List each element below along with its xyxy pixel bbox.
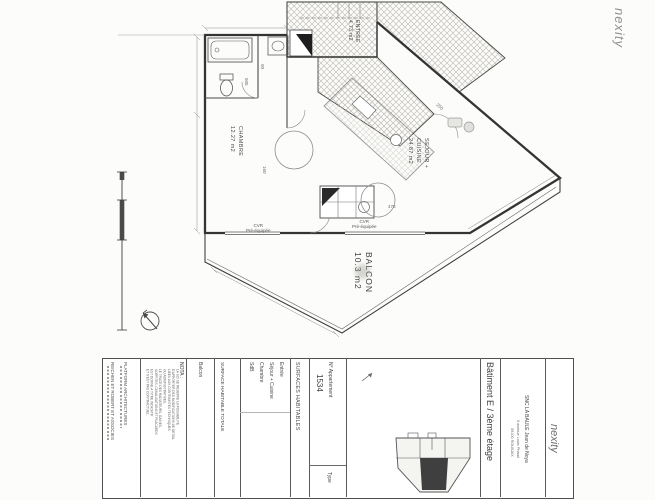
cvr-label-right: CVR Pré-équipée	[352, 219, 377, 229]
building-floor-label: Bâtiment E / 3ème étage	[485, 362, 495, 461]
north-arrow-icon	[141, 310, 159, 330]
dim-160: 160	[262, 166, 267, 174]
room-label-chambre: CHAMBRE 12.27 m2	[228, 126, 244, 156]
kitchen-counter-icon	[320, 186, 374, 218]
nexity-logo-top: nexity	[612, 8, 627, 48]
washbasin-icon	[391, 135, 402, 146]
company-city: 59100 ROUBAIX	[510, 428, 514, 457]
scanned-floor-plan-sheet: ENTREE 4.73 m2 CHAMBRE 12.27 m2 SEJOUR +…	[0, 0, 655, 500]
highlighted-unit	[420, 458, 448, 490]
bathtub-icon	[208, 38, 252, 62]
dim-90: 90	[260, 64, 265, 69]
balcony-railing	[205, 178, 560, 333]
key-plan-north-arrow-icon	[362, 373, 372, 381]
room-label-entree: ENTREE 4.73 m2	[346, 20, 360, 43]
cvr-label-left: CVR Pré-équipée	[246, 223, 271, 233]
sink-icon	[268, 37, 288, 55]
company-name: SNC LA BAULE Jean de Noya	[523, 395, 529, 463]
floor-plan-svg	[0, 0, 655, 355]
table-round-chambre	[275, 131, 313, 169]
dim-505: 505	[244, 78, 249, 86]
scan-artifact-blob	[355, 264, 370, 279]
scale-bar	[117, 172, 127, 330]
nexity-logo-title-block: nexity	[548, 424, 560, 453]
toilet-icon	[220, 74, 233, 96]
dim-478: 478	[388, 204, 396, 209]
room-label-sejour-cuisine: SEJOUR + CUISINE 24.87 m2	[406, 138, 430, 168]
dimension-lines	[118, 25, 339, 337]
hatch-common-landing	[287, 2, 377, 57]
neighbour-detail	[448, 118, 474, 132]
company-address: 5 avenue Louis Phaud	[516, 420, 520, 458]
